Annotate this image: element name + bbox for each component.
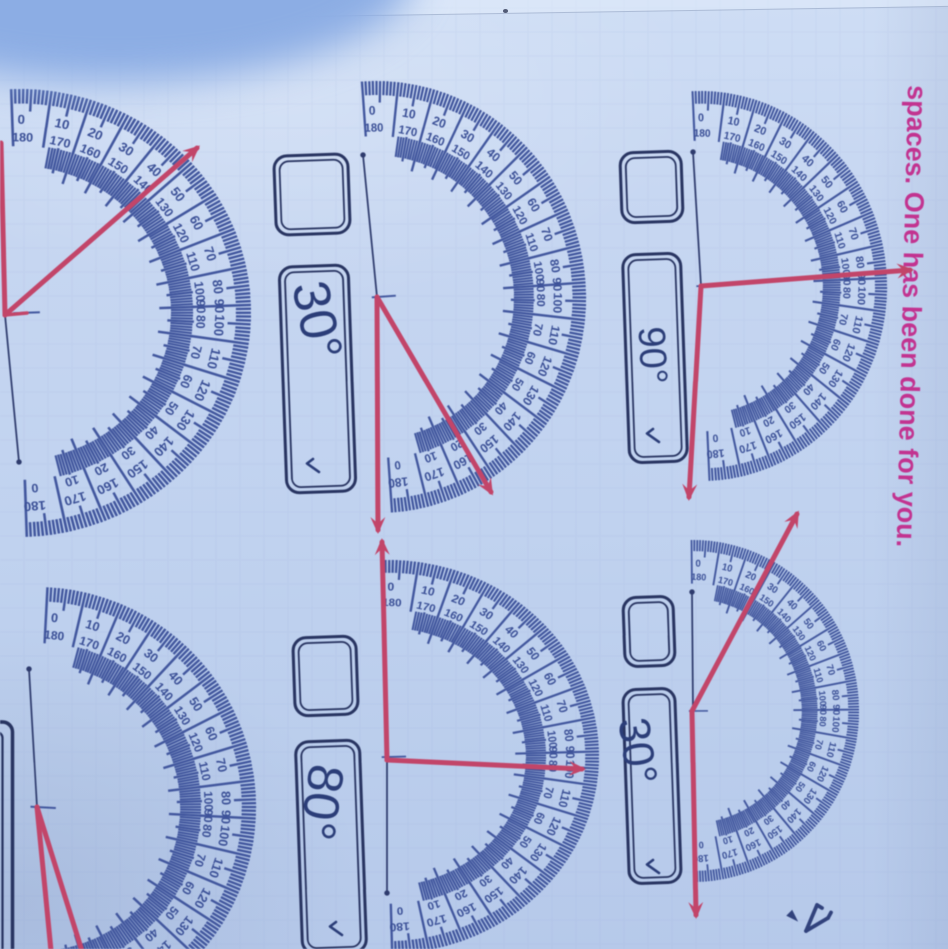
- svg-text:30°: 30°: [608, 715, 666, 788]
- svg-text:30°: 30°: [280, 276, 353, 365]
- svg-text:80°: 80°: [289, 761, 355, 844]
- svg-text:90°: 90°: [630, 326, 675, 386]
- svg-text:spaces. One has been done for: spaces. One has been done for you.: [891, 85, 932, 548]
